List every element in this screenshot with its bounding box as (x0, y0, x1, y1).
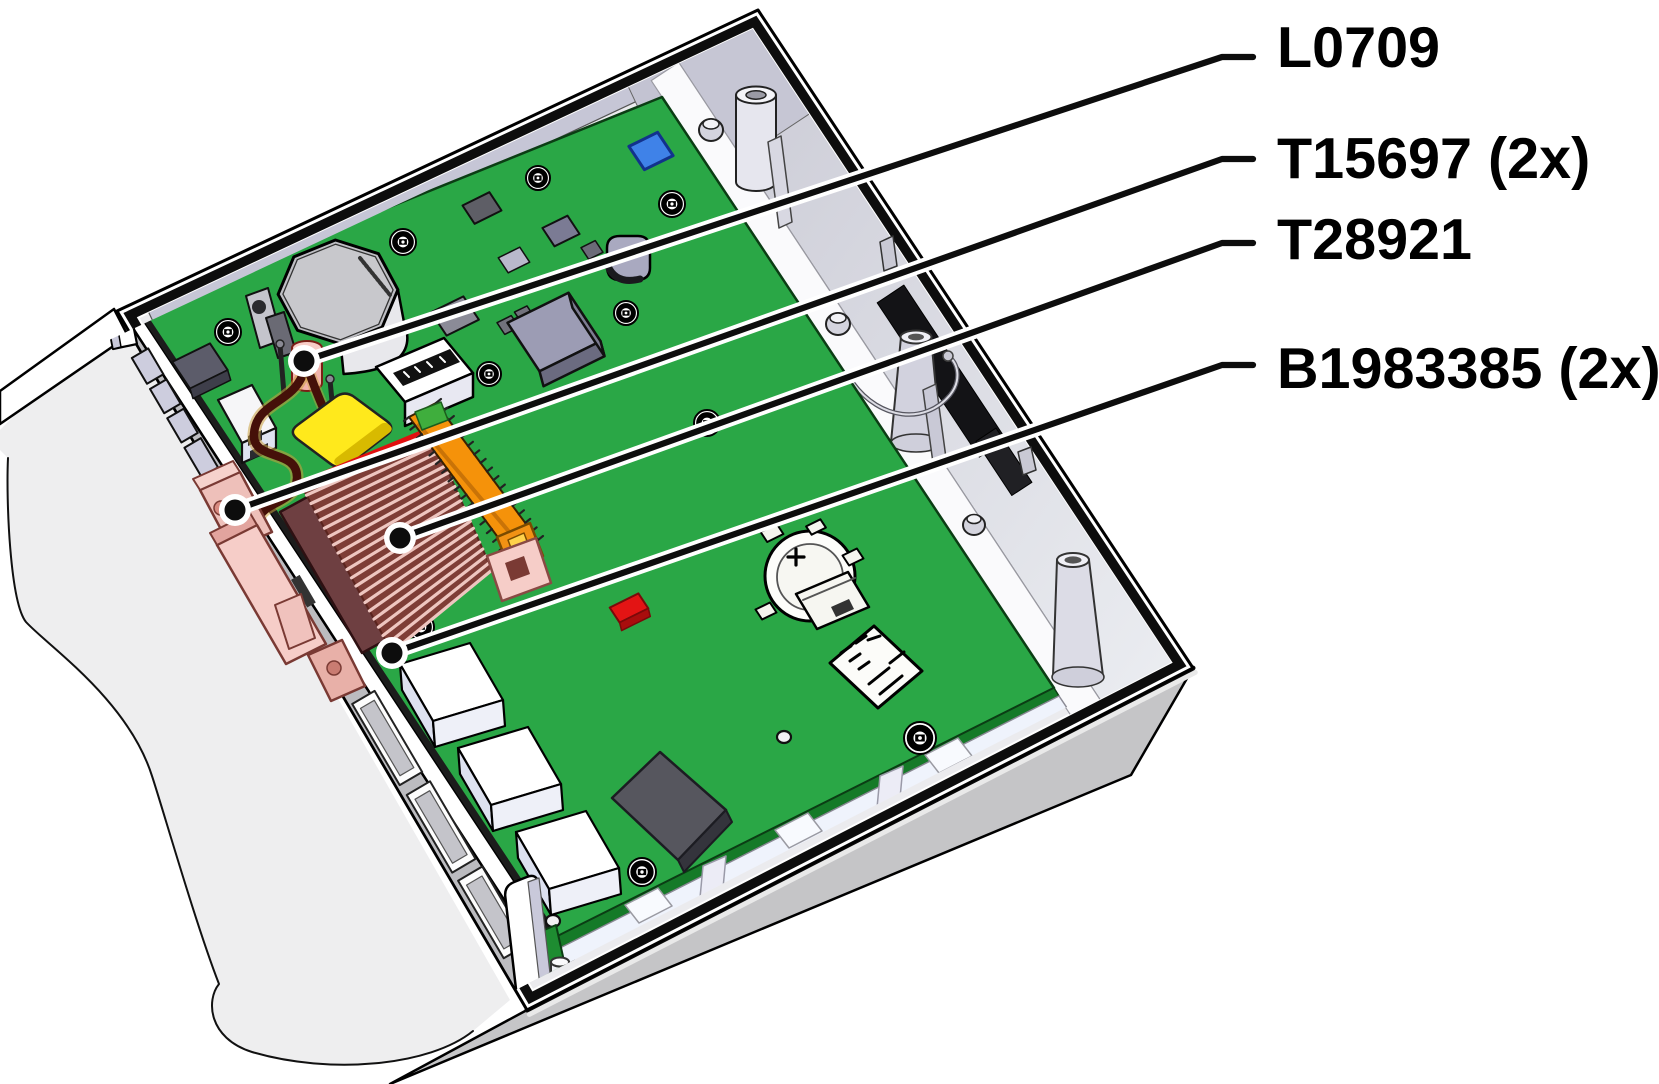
svg-text:B1983385 (2x): B1983385 (2x) (1277, 337, 1659, 401)
svg-text:T28921: T28921 (1277, 208, 1472, 272)
svg-text:L0709: L0709 (1277, 16, 1440, 80)
svg-text:T15697 (2x): T15697 (2x) (1277, 127, 1590, 191)
